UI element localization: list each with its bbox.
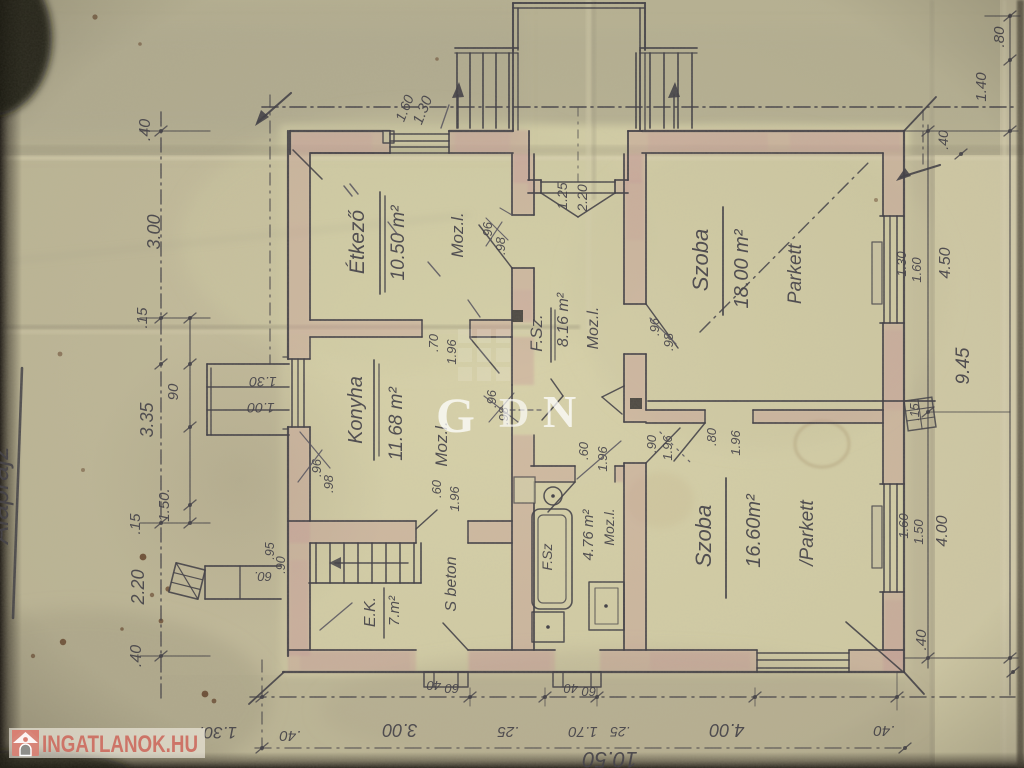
svg-text:G: G <box>436 387 475 443</box>
svg-text:D: D <box>499 391 529 437</box>
svg-text:INGATLANOK.HU: INGATLANOK.HU <box>42 731 198 758</box>
svg-text:N: N <box>543 386 576 437</box>
